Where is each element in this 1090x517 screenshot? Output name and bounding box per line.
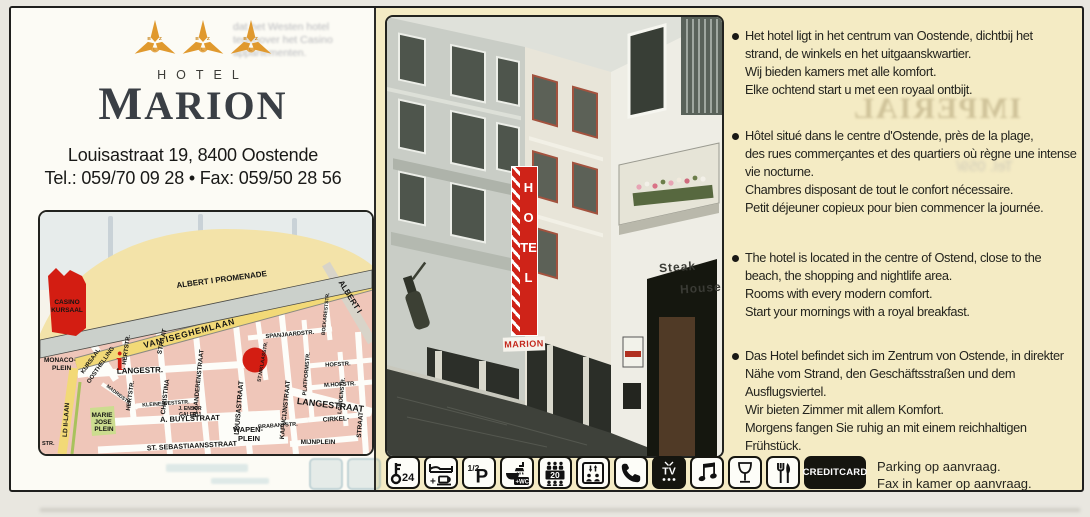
text-line: Wir bieten Zimmer mit allem Komfort. xyxy=(745,401,1077,419)
star-letter: L xyxy=(249,47,252,53)
map-label-marie1: MARIE xyxy=(92,412,114,419)
map-label-mijnplein: MIJNPLEIN xyxy=(301,439,336,446)
note-parking: Parking op aanvraag. xyxy=(877,458,1032,475)
text-line: Start your mornings with a royal breakfa… xyxy=(745,303,1077,321)
door xyxy=(659,317,695,456)
rooms-count-label: 20 xyxy=(550,469,560,479)
hotel-tel-fax: Tel.: 059/70 09 28 • Fax: 059/50 28 56 xyxy=(11,168,375,189)
star-letter: B xyxy=(147,36,151,42)
text-line: des rues commerçantes et des quartiers o… xyxy=(745,145,1077,163)
star-letter: B xyxy=(243,36,247,42)
bar-icon xyxy=(728,456,762,489)
text-line: Frühstück. xyxy=(745,437,1077,455)
sign-stripes xyxy=(512,167,520,335)
benelux-star-icon: B Z L xyxy=(229,18,273,66)
star-letter: Z xyxy=(255,36,258,42)
description-english: The hotel is located in the centre of Os… xyxy=(745,249,1077,321)
benelux-stars-logo: B Z L B Z L xyxy=(130,18,276,68)
key-hours-label: 24 xyxy=(402,472,415,484)
cellar-window xyxy=(623,383,641,409)
letterbox-slot xyxy=(625,351,641,357)
map-label-marie2: JOSE xyxy=(94,419,112,426)
star-letter: L xyxy=(201,47,204,53)
steakhouse-sign-line1: Steak xyxy=(659,259,697,276)
music-icon xyxy=(690,456,724,489)
bed-breakfast-icon: + xyxy=(424,456,458,489)
text-line: Hôtel situé dans le centre d'Ostende, pr… xyxy=(745,127,1077,145)
star-letter: L xyxy=(153,47,156,53)
tv-label: TV xyxy=(662,465,675,477)
creditcard-label: CREDITCARD xyxy=(803,467,868,478)
map-label-str: STR. xyxy=(42,441,55,447)
benelux-star-icon: B Z L xyxy=(181,18,225,66)
bleedthrough-icon xyxy=(309,458,343,490)
left-panel: dat het Westen hotel tegenover het Casin… xyxy=(11,8,375,490)
text-line: Das Hotel befindet sich im Zentrum von O… xyxy=(745,347,1077,365)
star-letter: B xyxy=(195,36,199,42)
amenity-notes: Parking op aanvraag. Fax in kamer op aan… xyxy=(877,458,1032,492)
benelux-star-icon: B Z L xyxy=(133,18,177,66)
map-label-langestr: LANGESTR. xyxy=(117,365,164,376)
text-line: Ausflugsviertel. xyxy=(745,383,1077,401)
text-line: Het hotel ligt in het centrum van Oosten… xyxy=(745,27,1077,45)
map-label-wapen2: PLEIN xyxy=(238,434,260,443)
key-24h-icon: 24 xyxy=(386,456,420,489)
text-line: vie nocturne. xyxy=(745,163,1077,181)
amenities-icon-row: 24 + 1/2 xyxy=(386,456,866,489)
half-pension-icon: 1/2 P xyxy=(462,456,496,489)
hotel-vertical-sign: HOTEL xyxy=(512,167,537,335)
marion-sign: MARION xyxy=(503,336,545,351)
scanned-brochure-page: dat het Westen hotel tegenover het Casin… xyxy=(0,0,1090,517)
description-german: Das Hotel befindet sich im Zentrum von O… xyxy=(745,347,1077,455)
restaurant-icon xyxy=(766,456,800,489)
plus-label: + xyxy=(430,476,436,486)
pension-label: P xyxy=(476,466,489,486)
map-label-monaco1: MONACO- xyxy=(44,357,76,364)
tv-icon: TV xyxy=(652,456,686,489)
text-line: Elke ochtend start u met een royaal ontb… xyxy=(745,81,1077,99)
phone-icon xyxy=(614,456,648,489)
wc-label: +WC xyxy=(516,479,530,485)
city-map: i ALBERT I PROMENADE ALBERT I KURSAAL OO… xyxy=(38,210,374,456)
right-window-dark xyxy=(629,25,665,117)
people-bottom xyxy=(547,480,563,485)
elevator-icon xyxy=(576,456,610,489)
note-fax: Fax in kamer op aanvraag. xyxy=(877,475,1032,492)
rooms-20-icon: 20 xyxy=(538,456,572,489)
text-line: Chambres disposant de tout le confort né… xyxy=(745,181,1077,199)
hotel-name: MARION xyxy=(11,78,375,131)
hotel-brochure-card: dat het Westen hotel tegenover het Casin… xyxy=(9,6,1084,492)
hotel-sign-text: HOTEL xyxy=(520,167,537,335)
description-french: Hôtel situé dans le centre d'Ostende, pr… xyxy=(745,127,1077,217)
scan-page-edge xyxy=(40,508,1080,512)
map-label-monaco2: PLEIN xyxy=(52,365,71,372)
text-line: Rooms with every modern comfort. xyxy=(745,285,1077,303)
map-label-casino2: KURSAAL xyxy=(51,307,83,314)
text-line: The hotel is located in the centre of Os… xyxy=(745,249,1077,267)
steakhouse-sign-line2: House xyxy=(680,280,723,297)
hotel-facade-photo: HOTEL MARION Steak House xyxy=(385,15,724,458)
text-line: Petit déjeuner copieux pour bien commenc… xyxy=(745,199,1077,217)
text-line: strand, de winkels en het uitgaanskwarti… xyxy=(745,45,1077,63)
map-label-cirkel: CIRKEL- xyxy=(323,415,350,423)
map-label-casino1: CASINO xyxy=(54,299,79,306)
map-label-marie3: PLEIN xyxy=(94,426,113,433)
star-letter: Z xyxy=(159,36,162,42)
text-line: Nähe vom Strand, den Geschäftsstraßen un… xyxy=(745,365,1077,383)
bath-wc-icon: +WC xyxy=(500,456,534,489)
star-letter: Z xyxy=(207,36,210,42)
text-line: Wij bieden kamers met alle komfort. xyxy=(745,63,1077,81)
description-dutch: Het hotel ligt in het centrum van Oosten… xyxy=(745,27,1077,99)
bleedthrough-smear xyxy=(211,478,269,484)
people-top xyxy=(547,461,563,469)
panel-divider xyxy=(374,8,376,490)
hotel-address: Louisastraat 19, 8400 Oostende xyxy=(11,145,375,166)
text-line: Morgens fangen Sie ruhig an mit einem re… xyxy=(745,419,1077,437)
creditcard-icon: CREDITCARD xyxy=(804,456,866,489)
text-line: beach, the shopping and nightlife area. xyxy=(745,267,1077,285)
bleedthrough-smear xyxy=(166,464,248,472)
